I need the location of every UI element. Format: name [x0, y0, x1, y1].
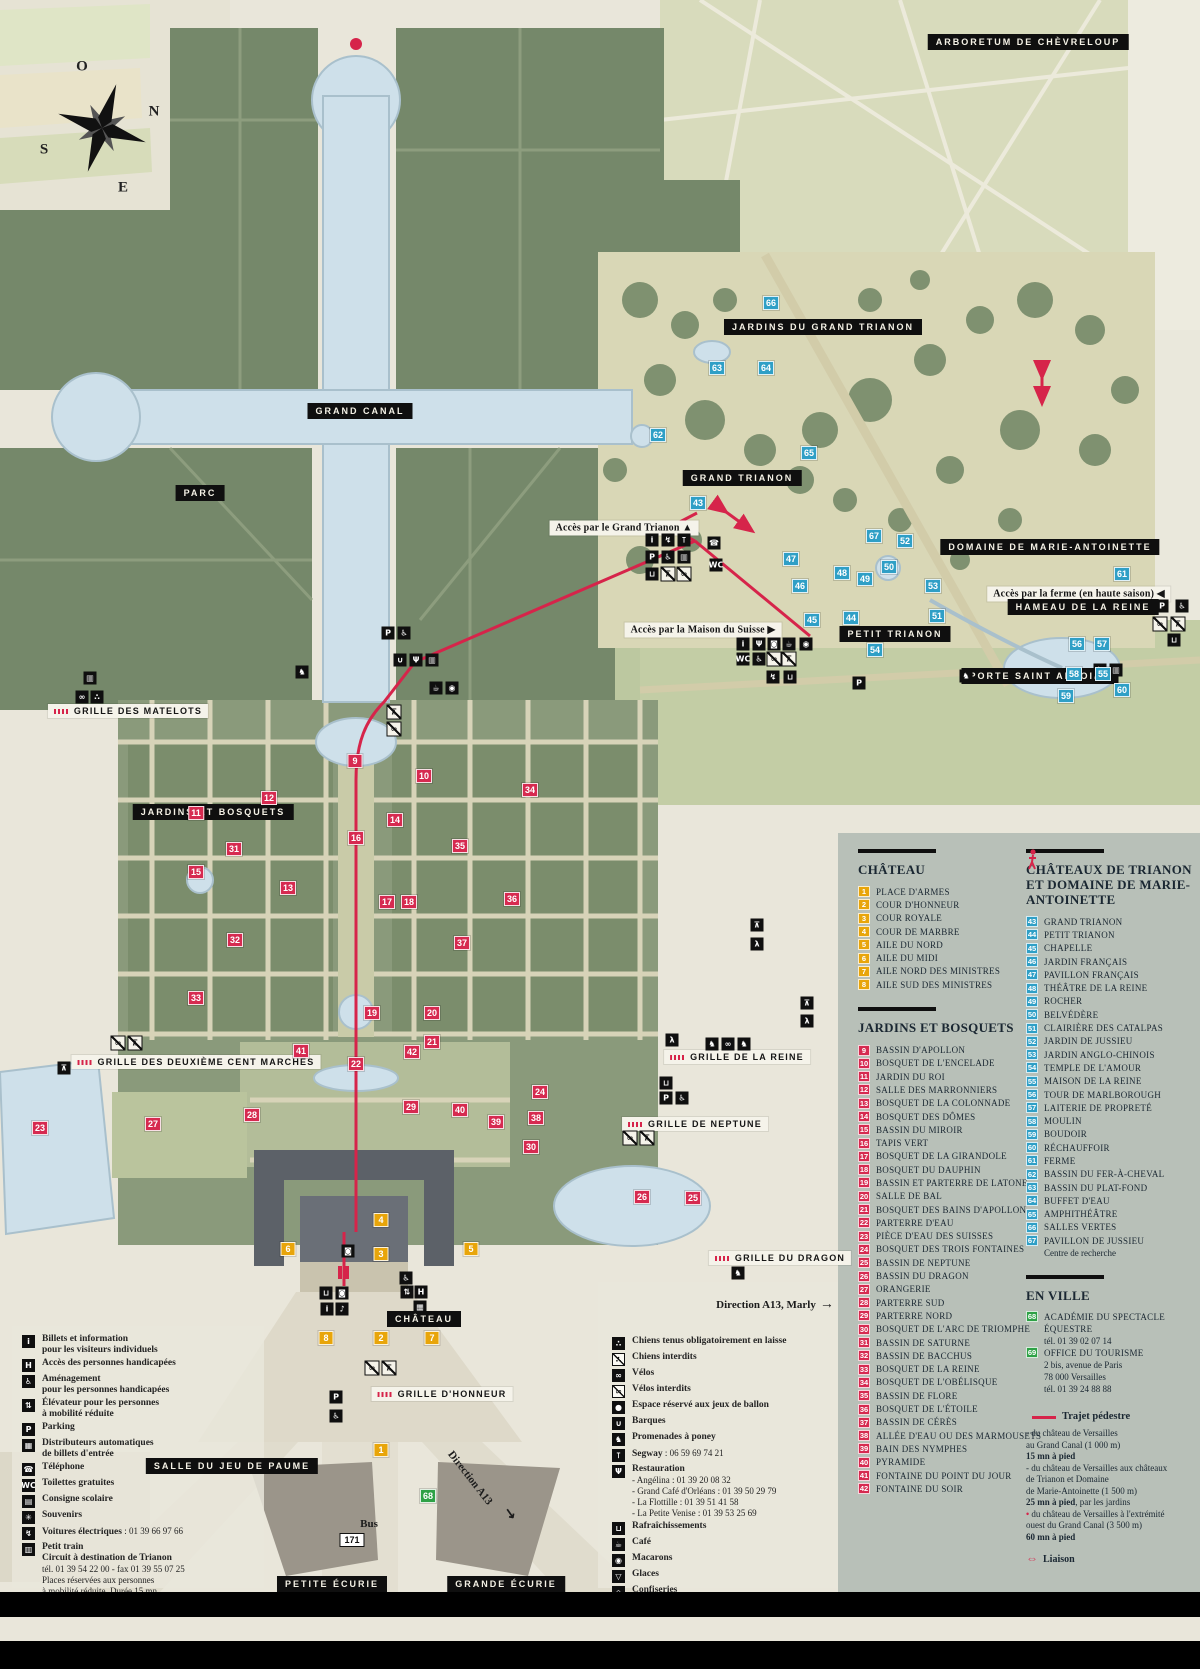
no-bike-icon: ∞ — [365, 1361, 380, 1376]
map-label-text: GRILLE DE NEPTUNE — [648, 1119, 762, 1129]
legend-item-label: MOULIN — [1044, 1116, 1082, 1126]
wheelchair-icon: ♿ — [676, 1092, 689, 1105]
trajet-lines: - du château de Versaillesau Grand Canal… — [1026, 1428, 1192, 1543]
trajet-text: au Grand Canal (1 000 m) — [1026, 1440, 1120, 1450]
legend-item-label: PYRAMIDE — [876, 1457, 925, 1467]
legend-item-label: RÉCHAUFFOIR — [1044, 1143, 1110, 1153]
legend-item-label: AMPHITHÉÂTRE — [1044, 1209, 1118, 1219]
legend-section: CHÂTEAU1PLACE D'ARMES2COUR D'HONNEUR3COU… — [858, 849, 1028, 991]
legend-item-66: 66SALLES VERTES — [1026, 1221, 1192, 1234]
trajet-text: du château de Versailles à l'extrémité — [1031, 1509, 1164, 1519]
slash — [383, 1362, 396, 1375]
legend-item-59: 59BOUDOIR — [1026, 1128, 1192, 1141]
legend-item-14: 14BOSQUET DES DÔMES — [858, 1110, 1028, 1123]
section-rule — [858, 849, 936, 853]
service-macarons: ◉Macarons — [612, 1553, 867, 1567]
no-bike-icon: ∞ — [1153, 617, 1168, 632]
marker-47: 47 — [783, 552, 799, 566]
service-line-bold: Rafraîchissements — [632, 1521, 706, 1531]
service-line: - Angélina : 01 39 20 08 32 — [632, 1475, 776, 1486]
restaurant-icon: Ψ — [612, 1465, 625, 1478]
service-barques: ∪Barques — [612, 1416, 867, 1430]
legend-column-1: CHÂTEAU1PLACE D'ARMES2COUR D'HONNEUR3COU… — [858, 849, 1028, 1495]
legend-marker-19: 19 — [858, 1177, 870, 1188]
legend-item-62: 62BASSIN DU FER-À-CHEVAL — [1026, 1168, 1192, 1181]
legend-marker-2: 2 — [858, 899, 870, 910]
service-cafe: ☕Café — [612, 1537, 867, 1551]
trajet-bold: 25 mn à pied — [1026, 1497, 1075, 1507]
legend-item-61: 61FERME — [1026, 1154, 1192, 1167]
service-parking: PParking — [22, 1422, 257, 1436]
no-picnic-icon: ⊼ — [782, 652, 797, 667]
legend-item-67: 67PAVILLON DE JUSSIEU — [1026, 1234, 1192, 1247]
marker-42: 42 — [404, 1045, 420, 1059]
legend-marker-43: 43 — [1026, 916, 1038, 927]
service-text: Macarons — [632, 1553, 672, 1567]
legend-item-28: 28PARTERRE SUD — [858, 1296, 1028, 1309]
legend-marker-69: 69 — [1026, 1347, 1038, 1358]
service-line: tél. 01 39 54 22 00 - fax 01 39 55 07 25 — [42, 1564, 185, 1575]
wheelchair-icon: ♿ — [662, 551, 675, 564]
map-label-grand-canal: GRAND CANAL — [308, 403, 413, 419]
legend-item-44: 44PETIT TRIANON — [1026, 928, 1192, 941]
marker-61: 61 — [1114, 567, 1130, 581]
legend-item-label: BASSIN DU MIROIR — [876, 1125, 963, 1135]
marker-20: 20 — [424, 1006, 440, 1020]
legend-item-label: BOSQUET DES DÔMES — [876, 1112, 975, 1122]
service-line-text: tél. 01 39 54 22 00 - fax 01 39 55 07 25 — [42, 1564, 185, 1574]
legend-item-60: 60RÉCHAUFFOIR — [1026, 1141, 1192, 1154]
legend-marker-67: 67 — [1026, 1235, 1038, 1246]
service-line-bold: Vélos — [632, 1368, 654, 1378]
legend-item-label: BASSIN DE BACCHUS — [876, 1351, 972, 1361]
service-line: pour les personnes handicapées — [42, 1385, 169, 1396]
map-label-arboretum: ARBORETUM DE CHÈVRELOUP — [928, 34, 1129, 50]
legend-item-label: THÉÂTRE DE LA REINE — [1044, 983, 1147, 993]
legend-item-56: 56TOUR DE MARLBOROUGH — [1026, 1088, 1192, 1101]
legend-item-3: 3COUR ROYALE — [858, 912, 1028, 925]
drink-icon: ⊔ — [320, 1287, 333, 1300]
legend-item-34: 34BOSQUET DE L'OBÉLISQUE — [858, 1376, 1028, 1389]
map-label-petit-trianon: PETIT TRIANON — [840, 626, 951, 642]
bus-line-number: 171 — [339, 1533, 364, 1547]
legend-marker-23: 23 — [858, 1231, 870, 1242]
compass-letter-E: E — [118, 180, 128, 197]
slash — [1154, 618, 1167, 631]
service-line: Téléphone — [42, 1462, 84, 1473]
wc-icon: WC — [710, 559, 723, 572]
marker-15: 15 — [188, 865, 204, 879]
service-line: Vélos — [632, 1368, 654, 1379]
red-dashes-icon — [54, 709, 69, 714]
legend-marker-64: 64 — [1026, 1195, 1038, 1206]
marker-45: 45 — [804, 613, 820, 627]
legend-item-35: 35BASSIN DE FLORE — [858, 1389, 1028, 1402]
marker-7: 7 — [425, 1331, 440, 1345]
ball-icon: ● — [612, 1401, 625, 1414]
marker-31: 31 — [226, 842, 242, 856]
legend-item-55: 55MAISON DE LA REINE — [1026, 1075, 1192, 1088]
service-line-bold: Toilettes gratuites — [42, 1478, 114, 1488]
map-label-text: GRILLE D'HONNEUR — [398, 1389, 507, 1399]
bus-label: Bus — [360, 1518, 378, 1530]
marker-34: 34 — [522, 783, 538, 797]
trajet-line: ouest du Grand Canal (3 500 m) — [1026, 1520, 1192, 1532]
legend-item-label: BASSIN DE SATURNE — [876, 1338, 970, 1348]
drink-icon: ⊔ — [660, 1077, 673, 1090]
legend-item-label: BUFFET D'EAU — [1044, 1196, 1110, 1206]
legend-item-label: BASSIN D'APOLLON — [876, 1045, 965, 1055]
legend-item-subline: tél. 01 39 02 07 14 — [1044, 1335, 1192, 1347]
no-picnic-icon: ⊼ — [1171, 617, 1186, 632]
marker-51: 51 — [929, 609, 945, 623]
legend-item-label: BASSIN DU DRAGON — [876, 1271, 969, 1281]
no-bike-icon: ∞ — [623, 1131, 638, 1146]
map-label-text: Accès par la Maison du Suisse ▶ — [631, 625, 776, 636]
legend-item-label: BASSIN DE NEPTUNE — [876, 1258, 971, 1268]
legend-item-label: ORANGERIE — [876, 1284, 931, 1294]
map-label-text: GRILLE DE LA REINE — [690, 1052, 804, 1062]
map-label-direction-a13-marly: Direction A13, Marly→ — [716, 1297, 834, 1313]
legend-item-18: 18BOSQUET DU DAUPHIN — [858, 1163, 1028, 1176]
parking-icon: P — [330, 1391, 343, 1404]
info-icon: i — [737, 638, 750, 651]
marker-4: 4 — [374, 1213, 389, 1227]
wheelchair-icon: ♿ — [1176, 600, 1189, 613]
legend-section: EN VILLE68ACADÉMIE DU SPECTACLE ÉQUESTRE… — [1026, 1275, 1192, 1395]
train-icon: ▥ — [84, 672, 97, 685]
no-picnic-icon: ⊼ — [128, 1036, 143, 1051]
segway-icon: ⊺ — [678, 534, 691, 547]
service-chiens-en-laisse: ∴Chiens tenus obligatoirement en laisse — [612, 1336, 867, 1350]
legend-item-label: CHAPELLE — [1044, 943, 1092, 953]
legend-marker-60: 60 — [1026, 1142, 1038, 1153]
service-toilettes: WCToilettes gratuites — [22, 1478, 257, 1492]
marker-5: 5 — [464, 1242, 479, 1256]
service-line-text: : 06 59 69 74 21 — [663, 1448, 724, 1458]
dog-icon: ∴ — [91, 691, 104, 704]
legend-item-label: AILE DU MIDI — [876, 953, 938, 963]
marker-24: 24 — [532, 1085, 548, 1099]
legend-marker-20: 20 — [858, 1191, 870, 1202]
legend-item-subline: Centre de recherche — [1044, 1247, 1192, 1259]
service-text: Rafraîchissements — [632, 1521, 706, 1535]
legend-marker-66: 66 — [1026, 1222, 1038, 1233]
legend-item-label: BASSIN DU PLAT-FOND — [1044, 1183, 1147, 1193]
legend-marker-59: 59 — [1026, 1129, 1038, 1140]
service-line: Accès des personnes handicapées — [42, 1358, 176, 1369]
service-line: Chiens interdits — [632, 1352, 697, 1363]
legend-item-label: FONTAINE DU POINT DU JOUR — [876, 1471, 1012, 1481]
parking-icon: P — [646, 551, 659, 564]
marker-66: 66 — [763, 296, 779, 310]
bottom-bar-1 — [0, 1592, 1200, 1617]
legend-item-54: 54TEMPLE DE L'AMOUR — [1026, 1061, 1192, 1074]
map-label-grille-d-honneur: GRILLE D'HONNEUR — [372, 1387, 513, 1401]
marker-13: 13 — [280, 881, 296, 895]
lift-icon: ⇅ — [22, 1399, 35, 1412]
legend-item-label: BOSQUET DE LA GIRANDOLE — [876, 1151, 1007, 1161]
service-text: Parking — [42, 1422, 75, 1436]
marker-11: 11 — [188, 806, 204, 820]
trajet-text: de Marie-Antoinette (1 500 m) — [1026, 1486, 1137, 1496]
slash — [388, 723, 401, 736]
service-line-bold: Segway — [632, 1449, 663, 1459]
service-line: Glaces — [632, 1569, 659, 1580]
legend-item-label: JARDIN DE JUSSIEU — [1044, 1036, 1133, 1046]
legend-item-label: COUR D'HONNEUR — [876, 900, 960, 910]
legend-marker-12: 12 — [858, 1084, 870, 1095]
legend-marker-9: 9 — [858, 1045, 870, 1056]
legend-marker-47: 47 — [1026, 969, 1038, 980]
marker-40: 40 — [452, 1103, 468, 1117]
legend-item-7: 7AILE NORD DES MINISTRES — [858, 965, 1028, 978]
legend-item-2: 2COUR D'HONNEUR — [858, 898, 1028, 911]
parking-icon: P — [1156, 600, 1169, 613]
trajet-pedestre-block: Trajet pédestre - du château de Versaill… — [1026, 1411, 1192, 1566]
legend-marker-21: 21 — [858, 1204, 870, 1215]
service-text: Barques — [632, 1416, 666, 1430]
service-acces-personnes-handicapees: HAccès des personnes handicapées — [22, 1358, 257, 1372]
legend-marker-49: 49 — [1026, 996, 1038, 1007]
service-line: Espace réservé aux jeux de ballon — [632, 1400, 769, 1411]
legend-item-30: 30BOSQUET DE L'ARC DE TRIOMPHE — [858, 1323, 1028, 1336]
legend-item-label: TOUR DE MARLBOROUGH — [1044, 1090, 1161, 1100]
legend-item-51: 51CLAIRIÈRE DES CATALPAS — [1026, 1021, 1192, 1034]
trajet-line: 60 mn à pied — [1026, 1532, 1192, 1544]
service-line: - La Flottille : 01 39 51 41 58 — [632, 1497, 776, 1508]
map-label-text: GRILLE DES MATELOTS — [74, 706, 202, 716]
section-title: EN VILLE — [1026, 1288, 1192, 1303]
service-line: Rafraîchissements — [632, 1521, 706, 1532]
service-velos-interdits: ∞Vélos interdits — [612, 1384, 867, 1398]
marker-26: 26 — [634, 1190, 650, 1204]
no-picnic-icon: ⊼ — [382, 1361, 397, 1376]
legend-item-8: 8AILE SUD DES MINISTRES — [858, 978, 1028, 991]
ecar-icon: ↯ — [662, 534, 675, 547]
marker-64: 64 — [758, 361, 774, 375]
trajet-title: Trajet pédestre — [1062, 1411, 1130, 1422]
direction-arrow-icon: ↘ — [499, 1505, 517, 1523]
service-segway: ⊺Segway : 06 59 69 74 21 — [612, 1448, 867, 1462]
ecar-icon: ↯ — [767, 671, 780, 684]
legend-item-31: 31BASSIN DE SATURNE — [858, 1336, 1028, 1349]
legend-item-12: 12SALLE DES MARRONNIERS — [858, 1083, 1028, 1096]
legend-item-label: PLACE D'ARMES — [876, 887, 950, 897]
marker-60: 60 — [1114, 683, 1130, 697]
service-text: Aménagementpour les personnes handicapée… — [42, 1374, 169, 1396]
legend-item-label: BOSQUET DE L'ARC DE TRIOMPHE — [876, 1324, 1030, 1334]
marker-36: 36 — [504, 892, 520, 906]
legend-item-22: 22PARTERRE D'EAU — [858, 1216, 1028, 1229]
legend-marker-46: 46 — [1026, 956, 1038, 967]
service-line-bold: Espace réservé aux jeux de ballon — [632, 1400, 769, 1410]
legend-item-17: 17BOSQUET DE LA GIRANDOLE — [858, 1150, 1028, 1163]
service-text: Distributeurs automatiquesde billets d'e… — [42, 1438, 154, 1460]
legend-item-33: 33BOSQUET DE LA REINE — [858, 1363, 1028, 1376]
legend-item-42: 42FONTAINE DU SOIR — [858, 1482, 1028, 1495]
marker-14: 14 — [387, 813, 403, 827]
red-dashes-icon — [670, 1055, 685, 1060]
trajet-line: 15 mn à pied — [1026, 1451, 1192, 1463]
map-label-grille-du-dragon: GRILLE DU DRAGON — [709, 1251, 851, 1265]
service-line-bold: Macarons — [632, 1553, 672, 1563]
red-dashes-icon — [78, 1060, 93, 1065]
map-label-direction-a13-arrow: ↘ — [499, 1504, 517, 1523]
service-restauration: ΨRestauration- Angélina : 01 39 20 08 32… — [612, 1464, 867, 1519]
trajet-line: de Marie-Antoinette (1 500 m) — [1026, 1486, 1192, 1498]
camera-icon: ◙ — [342, 1245, 355, 1258]
legend-marker-22: 22 — [858, 1217, 870, 1228]
service-text: Vélos interdits — [632, 1384, 691, 1398]
legend-item-4: 4COUR DE MARBRE — [858, 925, 1028, 938]
trajet-text: ouest du Grand Canal (3 500 m) — [1026, 1520, 1142, 1530]
slash — [662, 568, 675, 581]
ecar-icon: ↯ — [22, 1527, 35, 1540]
legend-marker-18: 18 — [858, 1164, 870, 1175]
legend-section: CHÂTEAUX DE TRIANON ET DOMAINE DE MARIE-… — [1026, 849, 1192, 1259]
map-label-hameau-de-la-reine: HAMEAU DE LA REINE — [1008, 599, 1159, 615]
marker-39: 39 — [488, 1115, 504, 1129]
slash — [112, 1037, 125, 1050]
section-title: CHÂTEAUX DE TRIANON ET DOMAINE DE MARIE-… — [1026, 862, 1192, 907]
legend-marker-25: 25 — [858, 1257, 870, 1268]
service-line: - Grand Café d'Orléans : 01 39 50 29 79 — [632, 1486, 776, 1497]
marker-65: 65 — [801, 446, 817, 460]
service-line: à mobilité réduite — [42, 1409, 159, 1420]
service-text: Toilettes gratuites — [42, 1478, 114, 1492]
legend-item-23: 23PIÈCE D'EAU DES SUISSES — [858, 1230, 1028, 1243]
drink-icon: ⊔ — [1168, 634, 1181, 647]
marker-37: 37 — [454, 936, 470, 950]
service-line-text: Places réservées aux personnes — [42, 1575, 154, 1585]
marker-17: 17 — [379, 895, 395, 909]
no-bike-icon: ∞ — [387, 722, 402, 737]
legend-marker-30: 30 — [858, 1324, 870, 1335]
marker-33: 33 — [188, 991, 204, 1005]
legend-item-46: 46JARDIN FRANÇAIS — [1026, 955, 1192, 968]
marker-41: 41 — [293, 1044, 309, 1058]
legend-marker-13: 13 — [858, 1098, 870, 1109]
trajet-line: • du château de Versailles à l'extrémité — [1026, 1509, 1192, 1521]
slash — [388, 706, 401, 719]
legend-item-40: 40PYRAMIDE — [858, 1456, 1028, 1469]
service-line-bold: pour les visiteurs individuels — [42, 1345, 158, 1355]
marker-57: 57 — [1094, 637, 1110, 651]
service-line-bold: Circuit à destination de Trianon — [42, 1553, 172, 1563]
legend-column-2: CHÂTEAUX DE TRIANON ET DOMAINE DE MARIE-… — [1026, 849, 1192, 1566]
liaison-arrow-icon: ⇔ — [1026, 1551, 1038, 1565]
slash — [768, 653, 781, 666]
legend-item-label: FONTAINE DU SOIR — [876, 1484, 963, 1494]
parking-icon: P — [853, 677, 866, 690]
legend-marker-68: 68 — [1026, 1311, 1038, 1322]
service-text: Billets et informationpour les visiteurs… — [42, 1334, 158, 1356]
legend-item-label: COUR DE MARBRE — [876, 927, 960, 937]
slash — [613, 1354, 624, 1365]
no-picnic-icon: ⊼ — [387, 705, 402, 720]
trajet-text: , par les jardins — [1075, 1497, 1130, 1507]
service-line-bold: Glaces — [632, 1569, 659, 1579]
service-line-text: - Grand Café d'Orléans : 01 39 50 29 79 — [632, 1486, 776, 1496]
legend-item-45: 45CHAPELLE — [1026, 942, 1192, 955]
picnic-icon: ⊼ — [801, 997, 814, 1010]
service-billets-information: iBillets et informationpour les visiteur… — [22, 1334, 257, 1356]
legend-item-label: GRAND TRIANON — [1044, 917, 1122, 927]
map-label-grille-de-neptune: GRILLE DE NEPTUNE — [622, 1117, 768, 1131]
service-line-text: : 01 39 66 97 66 — [122, 1526, 183, 1536]
legend-marker-11: 11 — [858, 1071, 870, 1082]
no-dog-icon: ∴ — [612, 1353, 625, 1366]
service-distributeurs-billets: ▦Distributeurs automatiquesde billets d'… — [22, 1438, 257, 1460]
legend-item-label: ALLÉE D'EAU OU DES MARMOUSETS — [876, 1431, 1041, 1441]
marker-9: 9 — [348, 754, 363, 768]
service-line-bold: Vélos interdits — [632, 1384, 691, 1394]
slash — [1172, 618, 1185, 631]
service-line: pour les visiteurs individuels — [42, 1345, 158, 1356]
legend-marker-15: 15 — [858, 1124, 870, 1135]
wc-icon: WC — [22, 1479, 35, 1492]
legend-item-label: BOSQUET DE LA COLONNADE — [876, 1098, 1010, 1108]
service-text: Segway : 06 59 69 74 21 — [632, 1448, 724, 1462]
trajet-bold: 60 mn à pied — [1026, 1532, 1075, 1542]
legend-marker-58: 58 — [1026, 1116, 1038, 1127]
legend-item-16: 16TAPIS VERT — [858, 1136, 1028, 1149]
legend-item-58: 58MOULIN — [1026, 1114, 1192, 1127]
direction-text: Direction A13, Marly — [716, 1299, 816, 1311]
train-icon: ▥ — [678, 551, 691, 564]
service-line-bold: Barques — [632, 1416, 666, 1426]
legend-item-label: BOSQUET DE L'ENCELADE — [876, 1058, 995, 1068]
service-text: Consigne scolaire — [42, 1494, 113, 1508]
wheelchair-icon: ♿ — [22, 1375, 35, 1388]
service-text: Téléphone — [42, 1462, 84, 1476]
dog-icon: ∴ — [612, 1337, 625, 1350]
legend-item-65: 65AMPHITHÉÂTRE — [1026, 1208, 1192, 1221]
service-line-bold: Souvenirs — [42, 1510, 82, 1520]
legend-item-25: 25BASSIN DE NEPTUNE — [858, 1256, 1028, 1269]
legend-item-label: PARTERRE SUD — [876, 1298, 945, 1308]
legend-item-label: JARDIN ANGLO-CHINOIS — [1044, 1050, 1155, 1060]
marker-3: 3 — [374, 1247, 389, 1261]
map-label-jardins-du-grand-trianon: JARDINS DU GRAND TRIANON — [724, 319, 922, 335]
legend-marker-51: 51 — [1026, 1023, 1038, 1034]
legend-marker-6: 6 — [858, 953, 870, 964]
marker-2: 2 — [374, 1331, 389, 1345]
marker-58: 58 — [1066, 667, 1082, 681]
train-icon: ▥ — [22, 1543, 35, 1556]
service-line-bold: Café — [632, 1537, 651, 1547]
legend-item-64: 64BUFFET D'EAU — [1026, 1194, 1192, 1207]
marker-27: 27 — [145, 1117, 161, 1131]
service-line: Circuit à destination de Trianon — [42, 1553, 185, 1564]
legend-panel: CHÂTEAU1PLACE D'ARMES2COUR D'HONNEUR3COU… — [838, 833, 1200, 1592]
legend-item-label: SALLE DES MARRONNIERS — [876, 1085, 997, 1095]
service-line: Parking — [42, 1422, 75, 1433]
legend-marker-44: 44 — [1026, 929, 1038, 940]
section-title: JARDINS ET BOSQUETS — [858, 1020, 1028, 1035]
legend-item-37: 37BASSIN DE CÉRÈS — [858, 1416, 1028, 1429]
legend-marker-54: 54 — [1026, 1062, 1038, 1073]
service-line-text: - La Flottille : 01 39 51 41 58 — [632, 1497, 739, 1507]
map-label-text: GRILLE DU DRAGON — [735, 1253, 845, 1263]
no-bike-icon: ∞ — [767, 652, 782, 667]
no-bike-icon: ∞ — [612, 1385, 625, 1398]
service-line-bold: Élévateur pour les personnes — [42, 1398, 159, 1408]
service-text: Glaces — [632, 1569, 659, 1583]
wheelchair-icon: ♿ — [400, 1272, 413, 1285]
legend-item-label: BASSIN DE FLORE — [876, 1391, 958, 1401]
